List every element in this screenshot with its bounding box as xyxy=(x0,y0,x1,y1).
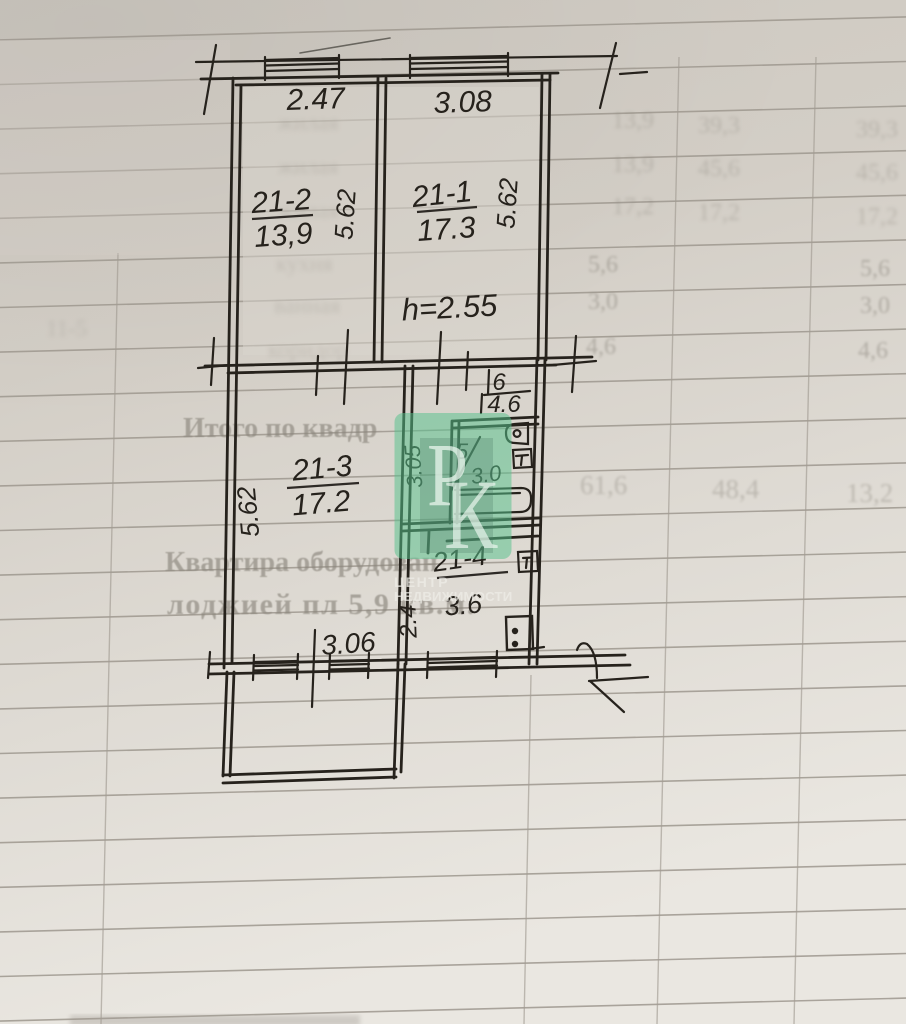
svg-text:3.06: 3.06 xyxy=(320,626,377,661)
svg-text:2.4: 2.4 xyxy=(394,604,422,639)
svg-text:4,6: 4,6 xyxy=(858,338,888,364)
svg-text:3,0: 3,0 xyxy=(588,289,618,315)
svg-text:17,2: 17,2 xyxy=(856,204,898,230)
svg-text:17,2: 17,2 xyxy=(612,194,654,220)
svg-text:кухня: кухня xyxy=(276,251,333,276)
svg-text:21-3: 21-3 xyxy=(290,449,354,487)
svg-text:13,9: 13,9 xyxy=(612,152,654,178)
svg-text:5.62: 5.62 xyxy=(231,485,265,539)
svg-text:ванная: ванная xyxy=(274,293,341,318)
svg-text:НЕДВИЖИМОСТИ: НЕДВИЖИМОСТИ xyxy=(394,589,513,604)
svg-text:17.2: 17.2 xyxy=(291,485,352,523)
svg-text:Итого по квадр: Итого по квадр xyxy=(183,413,377,444)
svg-text:3.08: 3.08 xyxy=(433,85,493,120)
svg-text:2.47: 2.47 xyxy=(285,82,347,117)
svg-text:h=2.55: h=2.55 xyxy=(401,287,499,327)
svg-text:39,3: 39,3 xyxy=(856,117,898,143)
svg-text:13,9: 13,9 xyxy=(253,217,314,254)
svg-text:13,9: 13,9 xyxy=(612,108,654,134)
svg-text:17.3: 17.3 xyxy=(416,211,477,248)
svg-text:жилая: жилая xyxy=(277,154,339,179)
svg-text:45,6: 45,6 xyxy=(856,160,898,186)
svg-text:коридор: коридор xyxy=(268,337,348,362)
svg-text:5,6: 5,6 xyxy=(588,252,618,278)
svg-text:5.62: 5.62 xyxy=(490,177,523,230)
svg-text:13,2: 13,2 xyxy=(846,478,893,508)
svg-text:39,3: 39,3 xyxy=(698,113,740,139)
svg-text:61,6: 61,6 xyxy=(580,470,627,500)
svg-text:3,0: 3,0 xyxy=(860,293,890,319)
svg-text:11-5: 11-5 xyxy=(46,316,87,341)
svg-text:45,6: 45,6 xyxy=(698,156,740,182)
svg-text:ЦЕНТР: ЦЕНТР xyxy=(394,574,449,590)
svg-text:К: К xyxy=(444,459,498,571)
svg-text:48,4: 48,4 xyxy=(712,474,760,504)
svg-text:5.62: 5.62 xyxy=(328,188,361,241)
svg-text:5,6: 5,6 xyxy=(860,256,890,282)
svg-text:17,2: 17,2 xyxy=(698,200,740,226)
